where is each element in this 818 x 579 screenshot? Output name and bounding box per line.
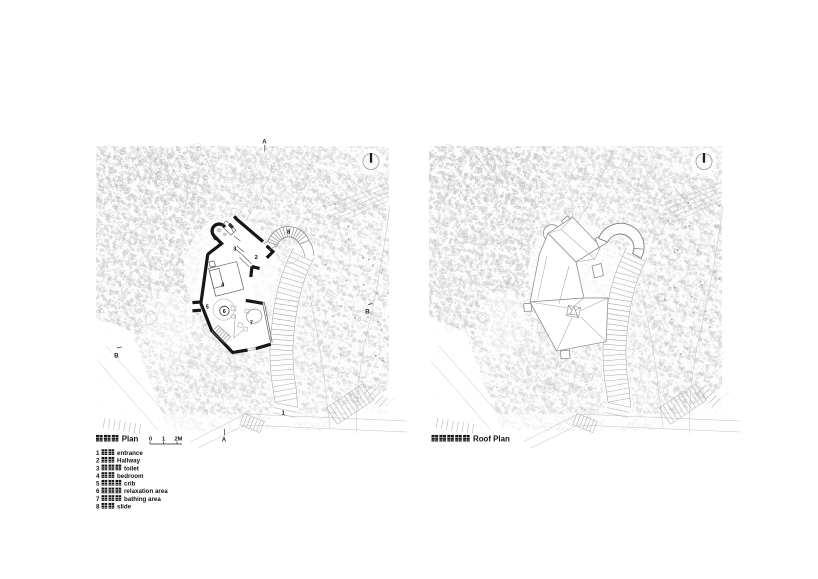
svg-text:entrance: entrance	[117, 450, 143, 457]
svg-text:A: A	[262, 140, 267, 146]
svg-text:7: 7	[250, 321, 253, 327]
svg-text:1: 1	[282, 410, 285, 416]
svg-text:8: 8	[287, 229, 290, 235]
svg-text:B: B	[114, 354, 119, 360]
svg-text:2: 2	[96, 458, 100, 465]
svg-text:Plan: Plan	[122, 435, 139, 444]
svg-text:7: 7	[96, 496, 100, 503]
svg-text:0: 0	[149, 437, 152, 443]
svg-text:3: 3	[96, 465, 100, 472]
svg-text:bedroom: bedroom	[117, 473, 144, 480]
svg-text:Roof Plan: Roof Plan	[473, 435, 510, 444]
svg-text:6: 6	[96, 488, 100, 495]
svg-text:3: 3	[233, 246, 236, 252]
svg-text:6: 6	[223, 309, 226, 315]
svg-text:slide: slide	[117, 504, 132, 511]
svg-text:toilet: toilet	[124, 465, 139, 472]
svg-text:2M: 2M	[175, 437, 183, 443]
svg-text:relaxation area: relaxation area	[124, 488, 168, 495]
svg-text:4: 4	[221, 283, 224, 289]
svg-text:5: 5	[206, 305, 209, 311]
svg-text:B: B	[365, 310, 370, 316]
svg-text:8: 8	[96, 504, 100, 511]
svg-text:crib: crib	[124, 481, 136, 488]
svg-text:4: 4	[96, 473, 100, 480]
svg-text:1: 1	[96, 450, 100, 457]
svg-text:A: A	[222, 438, 227, 444]
svg-text:Hallway: Hallway	[117, 458, 141, 465]
svg-text:2: 2	[255, 255, 258, 261]
svg-text:5: 5	[96, 481, 100, 488]
svg-text:bathing area: bathing area	[124, 496, 161, 503]
